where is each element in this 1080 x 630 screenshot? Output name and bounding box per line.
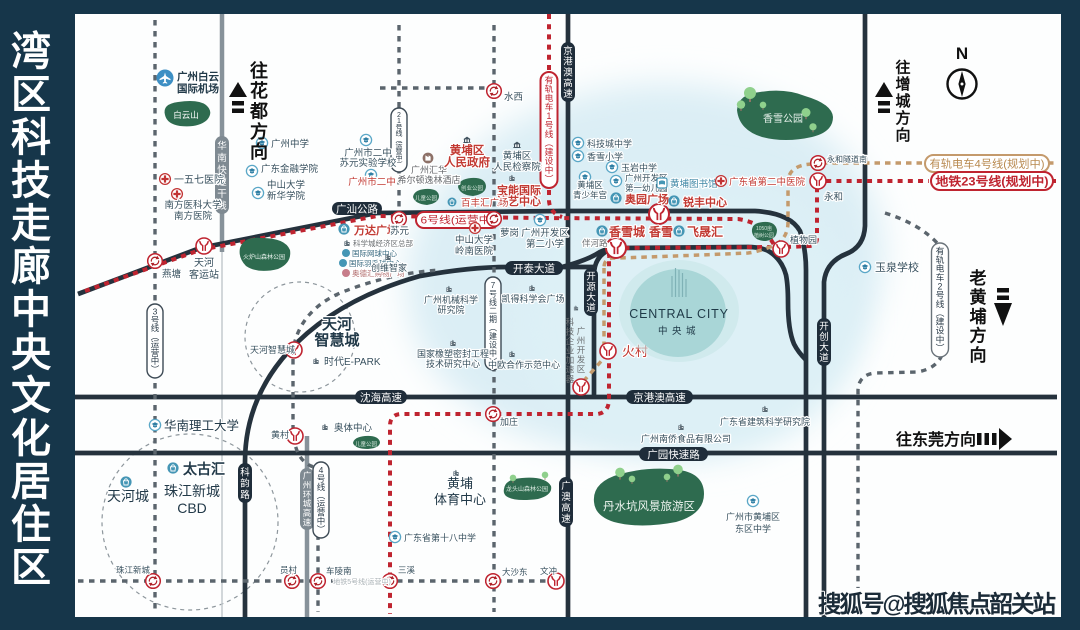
- svg-text:有轨电车1号线︵建设中︶: 有轨电车1号线︵建设中︶: [545, 74, 554, 184]
- svg-text:1050亩: 1050亩: [756, 225, 772, 232]
- svg-text:文冲: 文冲: [540, 566, 557, 576]
- svg-text:广州白云: 广州白云: [177, 70, 219, 83]
- svg-text:广园快速路: 广园快速路: [647, 448, 700, 461]
- svg-text:广东省第十八中学: 广东省第十八中学: [404, 532, 476, 543]
- svg-text:中欧合作示范中心: 中欧合作示范中心: [488, 359, 560, 370]
- svg-text:植物园: 植物园: [790, 234, 817, 245]
- svg-text:天河: 天河: [194, 257, 214, 269]
- svg-text:苏元实验学校: 苏元实验学校: [339, 157, 397, 169]
- svg-text:广州中学: 广州中学: [271, 138, 309, 150]
- svg-text:科技企业加速器: 科技企业加速器: [566, 317, 575, 384]
- svg-text:中山大学: 中山大学: [267, 179, 305, 191]
- svg-text:华南理工大学: 华南理工大学: [164, 418, 239, 433]
- svg-text:永和: 永和: [824, 191, 843, 203]
- svg-text:体育中心: 体育中心: [434, 492, 486, 507]
- svg-text:香雪: 香雪: [648, 224, 673, 239]
- svg-text:珠江新城: 珠江新城: [116, 565, 151, 575]
- svg-text:永和隧道南: 永和隧道南: [827, 154, 867, 164]
- svg-text:火炉山森林公园: 火炉山森林公园: [243, 253, 285, 261]
- svg-text:珠江新城: 珠江新城: [164, 483, 220, 499]
- svg-text:天河城: 天河城: [107, 488, 149, 504]
- svg-text:广澳高速: 广澳高速: [561, 480, 571, 525]
- svg-text:客运站: 客运站: [189, 268, 219, 281]
- svg-text:黄埔区: 黄埔区: [503, 150, 532, 162]
- svg-text:广州市黄埔区: 广州市黄埔区: [726, 511, 780, 522]
- svg-text:三溪: 三溪: [398, 565, 416, 575]
- svg-text:希尔顿逸林酒店: 希尔顿逸林酒店: [397, 174, 460, 185]
- svg-text:萝岗: 萝岗: [500, 228, 519, 239]
- svg-text:开创大道: 开创大道: [819, 322, 829, 365]
- svg-text:创业公园: 创业公园: [461, 184, 484, 192]
- svg-text:东区中学: 东区中学: [735, 523, 771, 534]
- svg-text:中央城: 中央城: [658, 325, 700, 337]
- svg-text:开源大道: 开源大道: [586, 272, 596, 315]
- svg-text:香雪小学: 香雪小学: [587, 151, 623, 162]
- svg-text:时代E-PARK: 时代E-PARK: [324, 356, 381, 368]
- svg-text:地铁5号线(运营中): 地铁5号线(运营中): [333, 577, 391, 586]
- svg-text:有轨电车2号线︵建设中︶: 有轨电车2号线︵建设中︶: [936, 245, 945, 353]
- svg-text:太古汇: 太古汇: [183, 461, 225, 477]
- svg-text:玉岩中学: 玉岩中学: [621, 162, 657, 173]
- svg-text:有轨电车4号线(规划中): 有轨电车4号线(规划中): [930, 156, 1045, 170]
- svg-text:加庄: 加庄: [500, 416, 518, 427]
- svg-text:人民检察院: 人民检察院: [493, 161, 541, 173]
- svg-text:水西: 水西: [504, 91, 523, 103]
- svg-text:南方医科大学: 南方医科大学: [164, 199, 221, 211]
- svg-text:广州汇华: 广州汇华: [411, 164, 447, 175]
- svg-text:奥体中心: 奥体中心: [334, 422, 373, 434]
- svg-text:苏元: 苏元: [390, 225, 410, 237]
- svg-text:科学城经济区总部: 科学城经济区总部: [353, 238, 413, 248]
- svg-text:科技城中学: 科技城中学: [587, 138, 632, 149]
- svg-text:技术研究中心: 技术研究中心: [426, 358, 480, 369]
- svg-text:京港澳高速: 京港澳高速: [563, 45, 573, 100]
- svg-text:白云山: 白云山: [173, 110, 199, 120]
- svg-text:CENTRAL CITY: CENTRAL CITY: [629, 307, 728, 321]
- svg-text:广东金融学院: 广东金融学院: [261, 163, 319, 175]
- svg-text:儿童公园: 儿童公园: [415, 194, 438, 202]
- svg-text:一五七医院: 一五七医院: [174, 173, 224, 186]
- svg-text:广州环城高速: 广州环城高速: [303, 471, 312, 528]
- svg-text:智慧城: 智慧城: [314, 331, 359, 349]
- svg-text:黄埔区: 黄埔区: [450, 143, 485, 157]
- svg-text:京港澳高速: 京港澳高速: [633, 391, 686, 404]
- svg-text:第二小学: 第二小学: [526, 238, 564, 250]
- svg-text:黄村: 黄村: [271, 429, 289, 440]
- svg-text:4号线︵运营中︶: 4号线︵运营中︶: [317, 465, 326, 535]
- svg-text:飞晟汇: 飞晟汇: [687, 225, 723, 239]
- svg-text:国际机场: 国际机场: [177, 82, 219, 95]
- svg-text:广州开发区: 广州开发区: [577, 326, 586, 374]
- svg-text:广州南侨食品有限公司: 广州南侨食品有限公司: [641, 433, 731, 444]
- svg-text:研究院: 研究院: [437, 304, 464, 315]
- svg-text:岭南医院: 岭南医院: [455, 245, 494, 257]
- svg-text:广州开发区: 广州开发区: [521, 227, 569, 239]
- svg-text:中山大学: 中山大学: [455, 234, 493, 246]
- svg-text:广汕公路: 广汕公路: [336, 202, 378, 215]
- svg-text:科韵路: 科韵路: [240, 466, 250, 501]
- svg-text:N: N: [956, 44, 968, 63]
- svg-text:新华学院: 新华学院: [267, 190, 306, 202]
- svg-text:人民政府: 人民政府: [444, 155, 490, 169]
- svg-text:凯得科学会广场: 凯得科学会广场: [501, 293, 564, 304]
- svg-text:伴河路: 伴河路: [582, 238, 608, 248]
- svg-text:奥园广场: 奥园广场: [624, 192, 669, 206]
- svg-text:天河智慧城: 天河智慧城: [250, 344, 295, 355]
- svg-text:老黄埔方向: 老黄埔方向: [969, 268, 987, 365]
- svg-text:丹水坑风景旅游区: 丹水坑风景旅游区: [603, 499, 695, 513]
- svg-text:搜狐号@搜狐焦点韶关站: 搜狐号@搜狐焦点韶关站: [818, 590, 1055, 617]
- svg-text:3号线︵运营中︶: 3号线︵运营中︶: [151, 307, 160, 375]
- svg-text:燕塘: 燕塘: [162, 268, 182, 280]
- svg-text:往花都方向: 往花都方向: [249, 60, 268, 162]
- svg-text:宝能国际: 宝能国际: [497, 183, 541, 197]
- svg-text:国家橡塑密封工程: 国家橡塑密封工程: [417, 348, 489, 359]
- svg-text:龙头山森林公园: 龙头山森林公园: [506, 485, 548, 493]
- svg-text:植树公园: 植树公园: [754, 232, 774, 239]
- svg-text:黄埔区: 黄埔区: [577, 180, 603, 190]
- svg-text:儿童公园: 儿童公园: [355, 440, 378, 448]
- svg-text:黄埔图书馆: 黄埔图书馆: [670, 178, 718, 190]
- svg-text:往东莞方向: 往东莞方向: [896, 430, 976, 449]
- svg-text:玉泉学校: 玉泉学校: [875, 260, 919, 274]
- svg-text:地铁23号线(规划中): 地铁23号线(规划中): [936, 173, 1049, 188]
- svg-text:7号线二期︵建设中︶: 7号线二期︵建设中︶: [489, 281, 497, 367]
- svg-text:广东省第二中医院: 广东省第二中医院: [729, 176, 806, 188]
- svg-text:青少年宫: 青少年宫: [573, 190, 607, 200]
- svg-text:南方医院: 南方医院: [174, 210, 213, 222]
- svg-text:广州市二中: 广州市二中: [348, 176, 396, 188]
- svg-text:车陵南: 车陵南: [326, 566, 352, 576]
- svg-text:大沙东: 大沙东: [502, 567, 528, 577]
- svg-text:创维智家: 创维智家: [371, 262, 407, 273]
- svg-text:开泰大道: 开泰大道: [513, 262, 555, 275]
- svg-text:CBD: CBD: [177, 500, 207, 516]
- svg-text:湾区科技走廊中央文化居住区: 湾区科技走廊中央文化居住区: [11, 29, 52, 590]
- svg-text:锐丰中心: 锐丰中心: [683, 195, 727, 209]
- svg-text:员村: 员村: [280, 565, 298, 575]
- svg-text:6号线(运营中): 6号线(运营中): [421, 214, 495, 227]
- svg-text:香雪城: 香雪城: [608, 224, 645, 239]
- svg-text:往增城方向: 往增城方向: [895, 58, 910, 144]
- svg-text:香雪公园: 香雪公园: [763, 113, 803, 125]
- svg-text:广东省建筑科学研究院: 广东省建筑科学研究院: [720, 416, 810, 427]
- svg-text:国际网球中心: 国际网球中心: [352, 248, 397, 258]
- svg-text:沈海高速: 沈海高速: [360, 391, 402, 404]
- svg-text:天河: 天河: [322, 315, 352, 333]
- svg-text:黄埔: 黄埔: [447, 476, 473, 491]
- svg-text:广州机械科学: 广州机械科学: [424, 294, 478, 305]
- svg-text:百丰汇广场: 百丰汇广场: [461, 197, 509, 209]
